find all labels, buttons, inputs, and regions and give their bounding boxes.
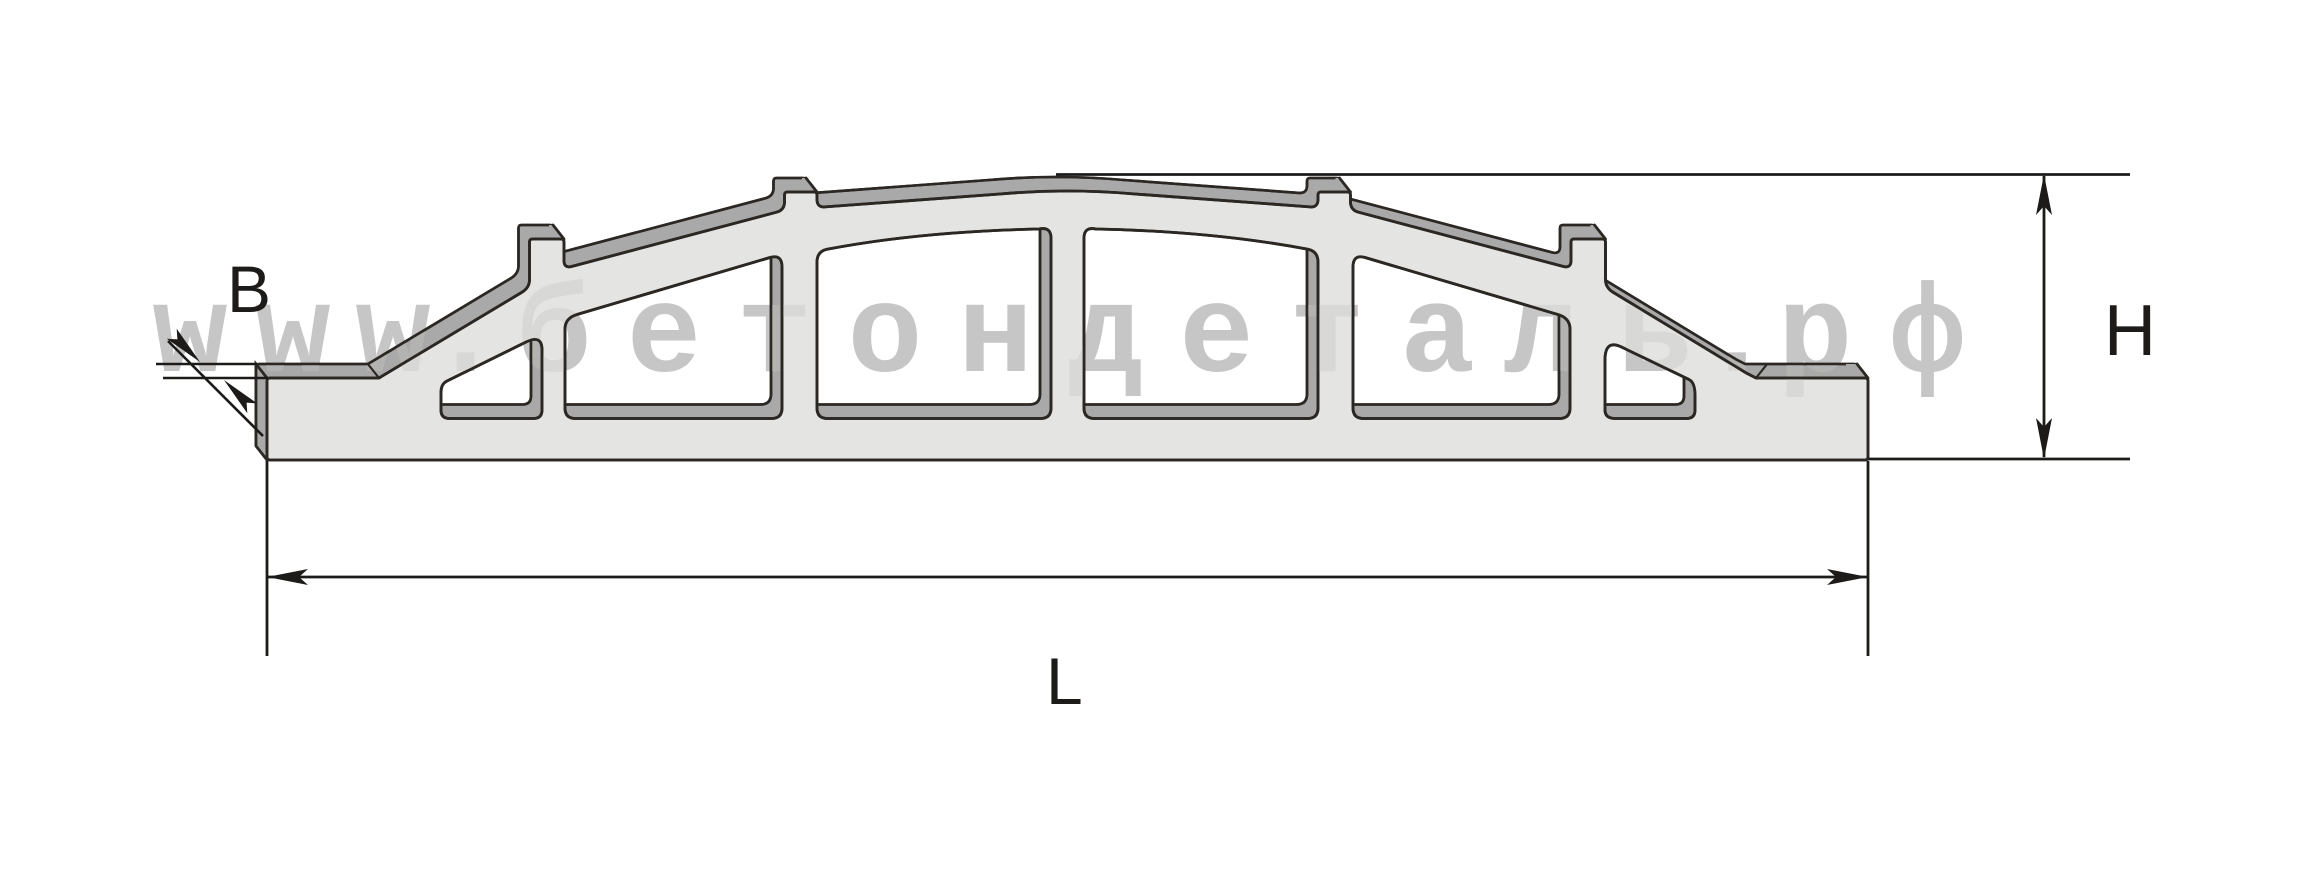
svg-text:B: B [227, 252, 271, 326]
svg-text:L: L [1046, 644, 1083, 718]
svg-text:H: H [2104, 291, 2156, 371]
